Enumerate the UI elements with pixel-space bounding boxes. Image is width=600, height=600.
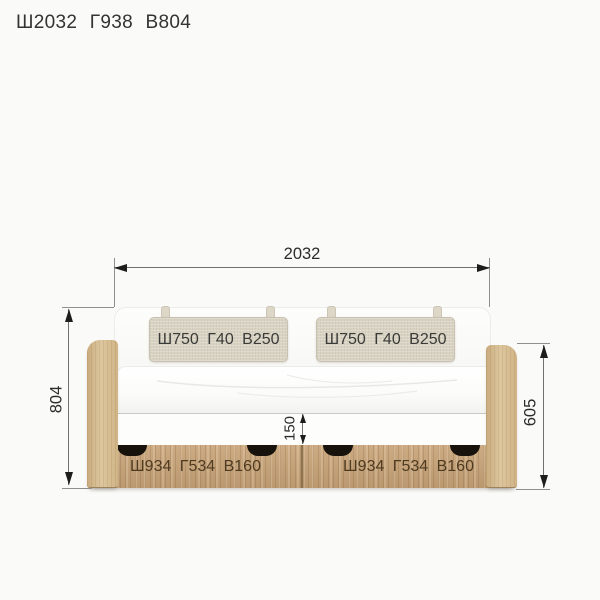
arrow-left-icon <box>114 264 127 272</box>
cushion-right-label: Ш750 Г40 В250 <box>324 331 446 349</box>
arrow-right-icon <box>477 264 490 272</box>
arrow-up-icon <box>65 309 73 322</box>
arrow-down-icon <box>300 435 306 444</box>
mattress-wrinkles <box>117 367 497 412</box>
dim-label-overall-height: 804 <box>48 360 67 440</box>
dim-label-overall-width: 2032 <box>114 245 490 264</box>
drawer-right-label: Ш934 Г534 В160 <box>343 458 474 476</box>
dim-line-overall-width <box>114 267 490 268</box>
dim-line-side-height <box>543 345 544 488</box>
drawer-handle <box>117 445 147 456</box>
dim-line-overall-height <box>68 309 69 485</box>
drawer-handle <box>323 445 353 456</box>
extension-line <box>516 489 550 490</box>
side-panel-left <box>87 340 118 488</box>
extension-line <box>62 307 114 308</box>
mattress <box>116 366 498 413</box>
drawer-handle <box>450 445 480 456</box>
drawer-left: Ш934 Г534 В160 <box>90 445 301 488</box>
cushion-left-label: Ш750 Г40 В250 <box>157 331 279 349</box>
extension-line <box>62 488 92 489</box>
page-title: Ш2032 Г938 В804 <box>16 12 191 34</box>
drawer-right: Ш934 Г534 В160 <box>303 445 514 488</box>
side-panel-right <box>486 345 517 488</box>
arrow-up-icon <box>540 345 548 358</box>
extension-line <box>517 343 550 344</box>
dim-label-rail-height: 150 <box>281 389 300 469</box>
furniture-dimension-diagram: Ш2032 Г938 В804 Ш750 Г40 В250 Ш750 Г40 В… <box>0 0 600 600</box>
arrow-down-icon <box>65 472 73 485</box>
drawer-left-label: Ш934 Г534 В160 <box>130 458 261 476</box>
drawer-row: Ш934 Г534 В160 Ш934 Г534 В160 <box>90 445 514 488</box>
cushion-left: Ш750 Г40 В250 <box>149 317 288 362</box>
dim-label-side-height: 605 <box>522 373 541 453</box>
arrow-down-icon <box>540 475 548 488</box>
arrow-up-icon <box>300 414 306 423</box>
cushion-right: Ш750 Г40 В250 <box>316 317 455 362</box>
drawer-handle <box>247 445 277 456</box>
